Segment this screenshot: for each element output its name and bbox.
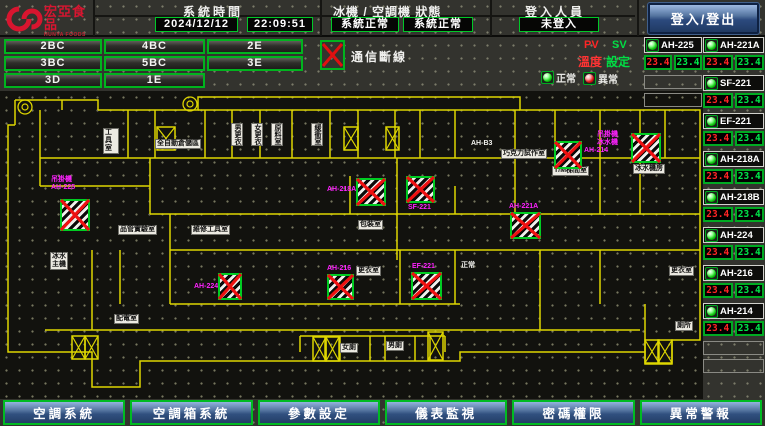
comm-fail-icon <box>320 40 345 70</box>
pv-header-label: PV <box>584 39 599 51</box>
room-label: 工具室 <box>103 128 119 154</box>
device-label: 吊掛機 冰水機 <box>597 131 618 148</box>
room-label: 配電室 <box>114 314 139 324</box>
unit-pv-value: 23.4 <box>703 207 733 222</box>
temp-label: 溫度 <box>578 53 602 70</box>
spiral-stair-icon <box>183 97 197 111</box>
device-label: AH-216 <box>327 265 351 273</box>
room-label: 冰水機房 <box>633 164 665 174</box>
unit-name-label: EF-221 <box>720 116 751 127</box>
sv-header-label: SV <box>612 39 627 51</box>
unit-status-led-icon <box>705 115 718 128</box>
room-label: 更衣室 <box>669 266 694 276</box>
zone-button-grid: 2BC4BC2E3BC5BC3E3D1E <box>4 39 317 88</box>
unit-ah-216[interactable]: AH-21623.423.4 <box>703 265 764 298</box>
room-label: 維修工具室 <box>191 225 230 235</box>
unit-pv-value: 23.4 <box>703 283 733 298</box>
unit-pv-value: 23.4 <box>703 245 733 260</box>
nav-button-參數設定[interactable]: 參數設定 <box>258 400 380 425</box>
set-label: 設定 <box>606 53 630 70</box>
nav-button-密碼權限[interactable]: 密碼權限 <box>512 400 634 425</box>
room-label: 冰水 主機 <box>50 252 68 270</box>
unit-status-led-icon <box>705 267 718 280</box>
brand-name-en: HUNYA FOODS <box>44 33 92 38</box>
unit-values: 23.423.4 <box>703 245 764 260</box>
unit-pv-value: 23.4 <box>644 55 672 70</box>
unit-sv-value: 23.4 <box>735 93 765 108</box>
header-bar: 宏亞食品 HUNYA FOODS 系統時間 2024/12/12 22:09:5… <box>0 0 765 37</box>
room-label: AH-B3 <box>471 140 492 148</box>
unit-name-label: AH-221A <box>720 40 760 51</box>
legend-abnormal-label: 異常 <box>598 71 618 86</box>
unit-name: AH-214 <box>703 303 764 319</box>
stair-shaft-icon <box>658 340 672 363</box>
room-label: 男更衣 <box>231 123 243 146</box>
device-marker[interactable] <box>411 272 442 300</box>
device-marker[interactable] <box>327 274 354 300</box>
unit-values: 23.423.4 <box>703 131 764 146</box>
unit-name: AH-218B <box>703 189 764 205</box>
empty-unit-slot <box>644 93 702 107</box>
room-label: 女更衣 <box>251 123 263 146</box>
unit-ah-218b[interactable]: AH-218B23.423.4 <box>703 189 764 222</box>
bottom-nav-bar: 空調系統空調箱系統參數設定儀表監視密碼權限異常警報 <box>0 400 765 425</box>
unit-name-label: SF-221 <box>720 78 751 89</box>
unit-name: EF-221 <box>703 113 764 129</box>
empty-unit-slot <box>703 359 764 373</box>
divider <box>637 0 639 36</box>
nav-button-空調箱系統[interactable]: 空調箱系統 <box>130 400 252 425</box>
room-label: 品管實驗室 <box>118 225 157 235</box>
unit-name-label: AH-225 <box>661 40 694 51</box>
unit-values: 23.423.4 <box>703 93 764 108</box>
stair-shaft-icon <box>326 337 339 361</box>
unit-name-label: AH-214 <box>720 306 753 317</box>
divider <box>490 0 492 36</box>
unit-values: 23.423.4 <box>703 169 764 184</box>
device-label: AH-224 <box>194 283 218 291</box>
zone-button-2e[interactable]: 2E <box>207 39 303 54</box>
device-label: AH-214 <box>584 147 608 155</box>
unit-sf-221[interactable]: SF-22123.423.4 <box>703 75 764 108</box>
unit-name: SF-221 <box>703 75 764 91</box>
unit-column-left: AH-22523.423.4 <box>644 37 702 111</box>
device-label: AH-221A <box>509 203 538 211</box>
unit-name-label: AH-216 <box>720 268 753 279</box>
unit-name: AH-224 <box>703 227 764 243</box>
comm-fail-label: 通信斷線 <box>351 48 407 65</box>
logo-icon <box>4 2 44 36</box>
device-label: SF-221 <box>408 204 431 212</box>
unit-status-led-icon <box>705 305 718 318</box>
device-marker[interactable] <box>218 273 242 300</box>
legend-abnormal: 異常 <box>583 71 618 86</box>
unit-sv-value: 23.4 <box>735 55 765 70</box>
unit-values: 23.423.4 <box>703 207 764 222</box>
unit-name: AH-225 <box>644 37 702 53</box>
device-marker[interactable] <box>554 141 582 169</box>
unit-values: 23.423.4 <box>703 321 764 336</box>
time-display: 22:09:51 <box>247 17 313 32</box>
unit-ah-225[interactable]: AH-22523.423.4 <box>644 37 702 70</box>
zone-button-2bc[interactable]: 2BC <box>4 39 102 54</box>
unit-status-led-icon <box>646 39 659 52</box>
unit-pv-value: 23.4 <box>703 169 733 184</box>
unit-name: AH-221A <box>703 37 764 53</box>
unit-sv-value: 23.4 <box>735 283 765 298</box>
device-label: EF-221 <box>412 263 435 271</box>
login-status: 未登入 <box>519 17 599 32</box>
unit-sv-value: 23.4 <box>735 321 765 336</box>
unit-name: AH-216 <box>703 265 764 281</box>
unit-status-led-icon <box>705 191 718 204</box>
ac-status: 系統正常 <box>403 17 473 32</box>
unit-column-right: AH-221A23.423.4SF-22123.423.4EF-22123.42… <box>703 37 764 377</box>
room-label: 包裝室 <box>358 220 383 230</box>
zone-button-1e[interactable]: 1E <box>104 73 205 88</box>
nav-button-空調系統[interactable]: 空調系統 <box>3 400 125 425</box>
device-marker[interactable] <box>356 178 386 206</box>
unit-pv-value: 23.4 <box>703 55 733 70</box>
unit-sv-value: 23.4 <box>735 245 765 260</box>
device-label: 吊掛機 AH-225 <box>51 176 75 193</box>
device-label: AH-218A <box>327 186 356 194</box>
chiller-status: 系統正常 <box>331 17 399 32</box>
zone-button-3d[interactable]: 3D <box>4 73 102 88</box>
nav-button-儀表監視[interactable]: 儀表監視 <box>385 400 507 425</box>
stair-shaft-icon <box>645 340 659 363</box>
nav-button-異常警報[interactable]: 異常警報 <box>640 400 762 425</box>
empty-unit-slot <box>703 341 764 355</box>
room-label: 女廁 <box>340 343 358 353</box>
empty-unit-slot <box>644 75 702 89</box>
unit-ah-224[interactable]: AH-22423.423.4 <box>703 227 764 260</box>
abnormal-led-icon <box>583 72 596 85</box>
stair-shaft-icon <box>313 337 326 361</box>
unit-values: 23.423.4 <box>703 283 764 298</box>
device-marker[interactable] <box>510 212 541 239</box>
room-label: 巧克力試作室 <box>501 149 547 159</box>
room-label: 更衣室 <box>356 266 381 276</box>
unit-name-label: AH-218A <box>720 154 760 165</box>
room-label: 男廁 <box>386 341 404 351</box>
unit-sv-value: 23.4 <box>674 55 702 70</box>
divider <box>320 0 322 36</box>
legend-normal-label: 正常 <box>556 70 576 85</box>
unit-sv-value: 23.4 <box>735 169 765 184</box>
room-label: 原料室 <box>271 123 283 146</box>
zone-button-3e[interactable]: 3E <box>207 56 303 71</box>
company-logo: 宏亞食品 HUNYA FOODS <box>4 2 92 35</box>
unit-status-led-icon <box>705 39 718 52</box>
stair-shaft-icon <box>344 127 358 150</box>
unit-values: 23.423.4 <box>644 55 702 70</box>
unit-name-label: AH-224 <box>720 230 753 241</box>
zone-button-3bc[interactable]: 3BC <box>4 56 102 71</box>
device-marker[interactable] <box>60 199 90 231</box>
legend-normal: 正常 <box>541 70 576 85</box>
spiral-stair-icon <box>18 100 32 114</box>
zone-button-4bc[interactable]: 4BC <box>104 39 205 54</box>
unit-values: 23.423.4 <box>703 55 764 70</box>
stair-shaft-icon <box>386 127 399 150</box>
unit-ah-221a[interactable]: AH-221A23.423.4 <box>703 37 764 70</box>
room-label: 緩衝室 <box>311 123 323 146</box>
unit-status-led-icon <box>705 229 718 242</box>
room-label: 全自動倉儲區 <box>155 139 201 149</box>
normal-led-icon <box>541 71 554 84</box>
unit-ef-221[interactable]: EF-22123.423.4 <box>703 113 764 146</box>
hmi-screen: { "logo": {"brand": "宏亞食品", "brand_en": … <box>0 0 765 426</box>
unit-sv-value: 23.4 <box>735 131 765 146</box>
unit-pv-value: 23.4 <box>703 93 733 108</box>
login-logout-button[interactable]: 登入/登出 <box>648 3 759 34</box>
stair-shaft-icon <box>72 336 85 359</box>
unit-name-label: AH-218B <box>720 192 760 203</box>
unit-ah-218a[interactable]: AH-218A23.423.4 <box>703 151 764 184</box>
device-marker[interactable] <box>631 133 661 163</box>
unit-pv-value: 23.4 <box>703 131 733 146</box>
unit-status-led-icon <box>705 77 718 90</box>
unit-ah-214[interactable]: AH-21423.423.4 <box>703 303 764 336</box>
device-marker[interactable] <box>406 176 435 203</box>
zone-button-5bc[interactable]: 5BC <box>104 56 205 71</box>
brand-name: 宏亞食品 <box>44 4 86 32</box>
room-label: 廁所 <box>675 321 693 331</box>
unit-pv-value: 23.4 <box>703 321 733 336</box>
unit-sv-value: 23.4 <box>735 207 765 222</box>
unit-name: AH-218A <box>703 151 764 167</box>
divider <box>93 0 95 36</box>
room-label: 正常 <box>461 262 475 270</box>
unit-status-led-icon <box>705 153 718 166</box>
date-display: 2024/12/12 <box>155 17 238 32</box>
